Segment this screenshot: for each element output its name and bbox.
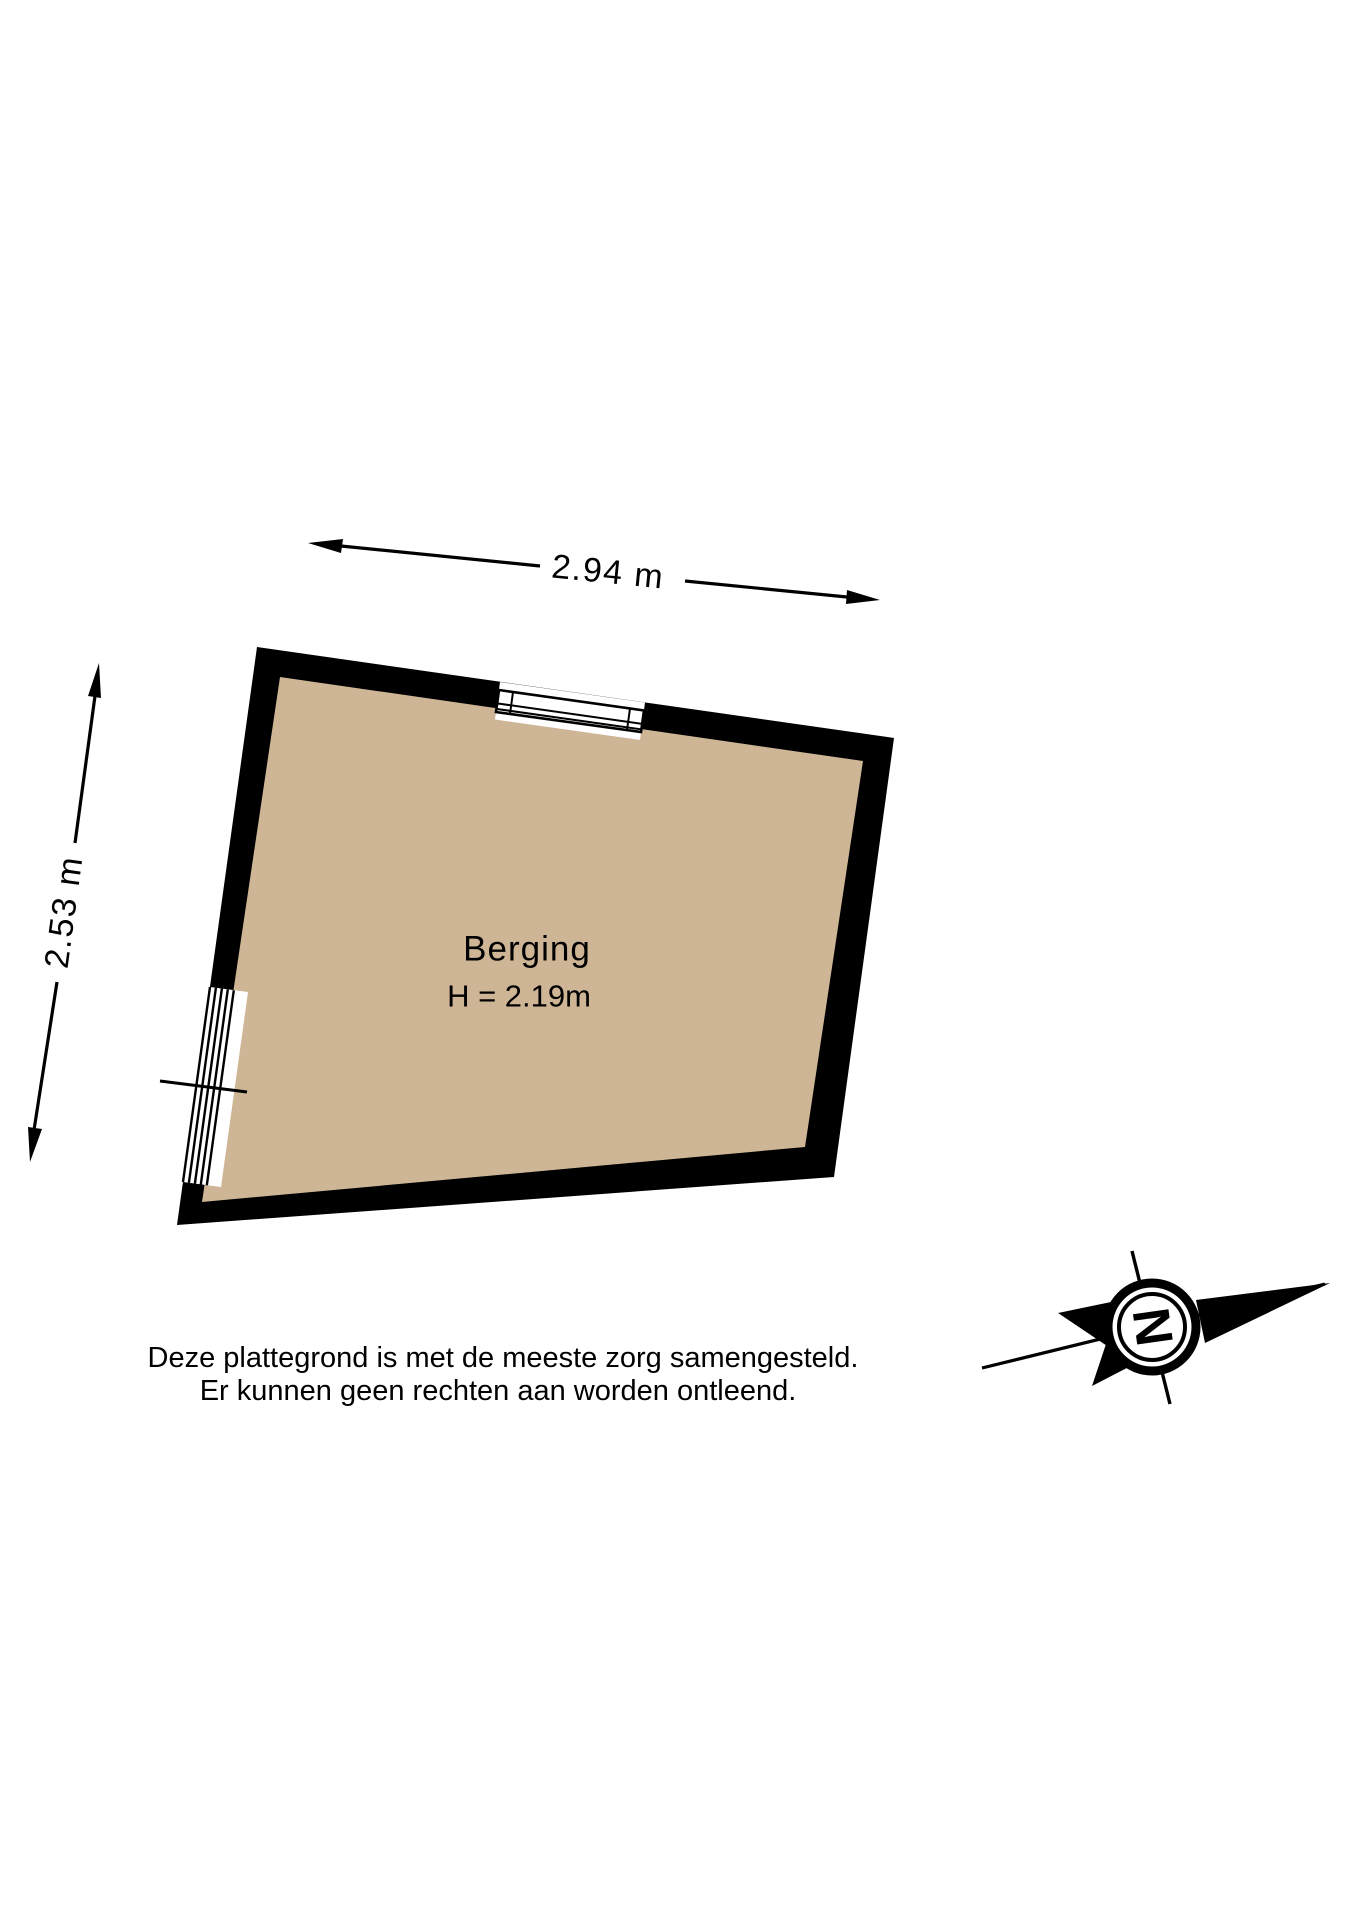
disclaimer-line-1: Deze plattegrond is met de meeste zorg s…	[148, 1342, 859, 1374]
width-dimension-label: 2.94 m	[550, 547, 666, 596]
room-label: Berging	[463, 930, 591, 969]
compass-needle-icon	[1196, 1283, 1330, 1343]
height-dimension-label: 2.53 m	[38, 853, 91, 970]
compass-north-label: N	[1121, 1304, 1184, 1349]
room-berging: Berging H = 2.19m	[160, 647, 894, 1225]
arrowhead-up-icon	[88, 663, 101, 698]
height-dimension-line-top	[75, 696, 95, 843]
room-height-label: H = 2.19m	[447, 979, 591, 1014]
width-dimension-line-right	[685, 581, 847, 597]
floorplan-canvas: 2.94 m 2.53 m	[0, 0, 1358, 1920]
disclaimer-line-2: Er kunnen geen rechten aan worden ontlee…	[200, 1375, 797, 1407]
width-dimension-line-left	[341, 546, 540, 566]
height-dimension: 2.53 m	[28, 663, 101, 1162]
width-dimension: 2.94 m	[308, 539, 880, 604]
arrowhead-right-icon	[846, 590, 880, 604]
height-dimension-line-bottom	[34, 982, 57, 1130]
compass-rose: N	[982, 1251, 1330, 1404]
arrowhead-down-icon	[28, 1127, 42, 1162]
disclaimer: Deze plattegrond is met de meeste zorg s…	[148, 1342, 859, 1407]
arrowhead-left-icon	[308, 539, 343, 553]
